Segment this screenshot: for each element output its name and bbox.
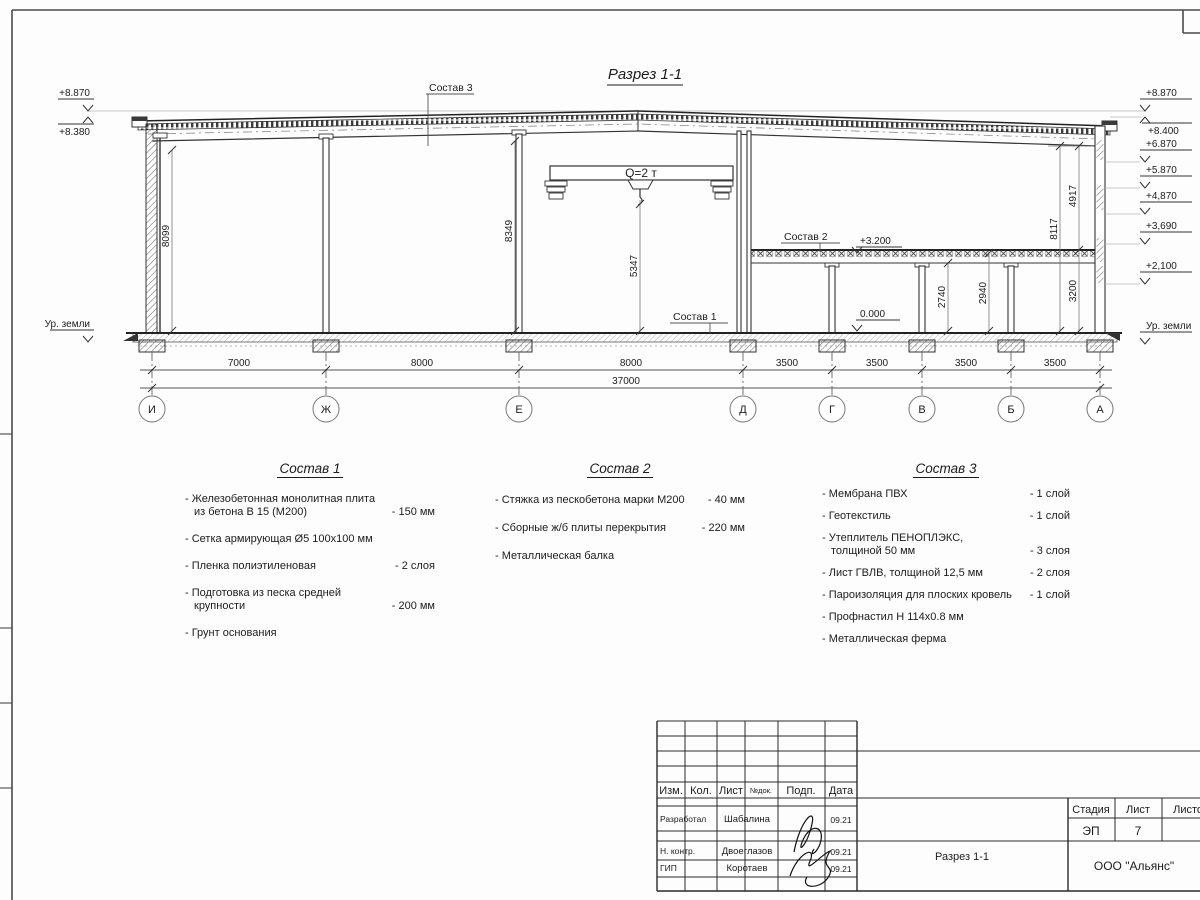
axis-bubble-Zh: Ж xyxy=(321,404,331,416)
elevation-marks-left: +8.870 +8.380 Ур. земли xyxy=(45,88,94,342)
crane-trolley xyxy=(628,180,653,189)
item-text: - Пароизоляция для плоских кровель xyxy=(822,589,1012,602)
item-text: - Стяжка из пескобетона марки М200 xyxy=(495,494,685,507)
drawing-title: Разрез 1-1 xyxy=(608,66,682,83)
elevation-marks-right: +8.870 +8.400 +6.870 +5.870 +4,870 +3,69… xyxy=(1105,88,1192,344)
composition-1-title: Состав 1 xyxy=(185,462,435,479)
composition-title-text: Состав 1 xyxy=(277,461,344,478)
elev-right-7: +2,100 xyxy=(1146,261,1177,272)
axis-bubble-A: А xyxy=(1096,404,1104,416)
elev-right-2: +8.400 xyxy=(1148,126,1179,137)
item-text: - Мембрана ПВХ xyxy=(822,488,907,501)
tb-row3-date: 09.21 xyxy=(830,864,852,874)
tb-col-list: Лист xyxy=(719,785,743,797)
callout-roof-label: Состав 3 xyxy=(429,82,473,94)
item-text: - Геотекстиль xyxy=(822,510,893,523)
list-item: - Металлическая балка xyxy=(495,550,745,563)
drawing-sheet: Разрез 1-1 xyxy=(0,0,1200,900)
tb-company: ООО "Альянс" xyxy=(1094,859,1174,873)
item-text: - Металлическая балка xyxy=(495,550,614,563)
list-item: - Пароизоляция для плоских кровель- 1 сл… xyxy=(822,589,1070,602)
tb-sheet-value: 7 xyxy=(1135,824,1142,838)
composition-3-title: Состав 3 xyxy=(822,462,1070,479)
crane-capacity-label: Q=2 т xyxy=(625,166,657,180)
list-item: - Пленка полиэтиленовая- 2 слоя xyxy=(185,560,435,573)
tb-col-izm: Изм. xyxy=(659,785,683,797)
dim-2740: 2740 xyxy=(937,285,948,308)
list-item: - Сетка армирующая Ø5 100х100 мм xyxy=(185,533,435,546)
elev-right-1: +8.870 xyxy=(1146,88,1177,99)
tb-sheet-header: Лист xyxy=(1126,804,1150,816)
composition-1-list: Состав 1 - Железобетонная монолитная пли… xyxy=(185,462,435,640)
item-text: - Железобетонная монолитная плита из бет… xyxy=(185,493,375,519)
item-text: - Пленка полиэтиленовая xyxy=(185,560,316,573)
axis-bubble-G: Г xyxy=(829,404,835,416)
callout-floor-label: Состав 1 xyxy=(673,311,717,323)
composition-3-list: Состав 3 - Мембрана ПВХ- 1 слой - Геотек… xyxy=(822,462,1070,646)
tb-row2-name: Двоеглазов xyxy=(722,846,773,857)
list-item: - Геотекстиль- 1 слой xyxy=(822,510,1070,523)
list-item: - Лист ГВЛВ, толщиной 12,5 мм- 2 слоя xyxy=(822,567,1070,580)
mezzanine-slab xyxy=(751,250,1095,263)
item-value: - 3 слоя xyxy=(1030,545,1070,558)
dim-8349: 8349 xyxy=(504,219,515,242)
dim-8117: 8117 xyxy=(1049,218,1060,240)
item-value: - 40 мм xyxy=(708,494,745,507)
tb-row3-role: ГИП xyxy=(660,863,677,873)
axis-bubble-D: Д xyxy=(739,404,747,416)
floor-slab xyxy=(123,333,1122,346)
list-item: - Утеплитель ПЕНОПЛЭКС, толщиной 50 мм- … xyxy=(822,532,1070,558)
elev-floor-zero: 0.000 xyxy=(860,309,885,320)
elev-left-ground: Ур. земли xyxy=(45,319,90,330)
dim-2940: 2940 xyxy=(978,281,989,304)
composition-title-text: Состав 2 xyxy=(587,461,654,478)
span-3500b: 3500 xyxy=(866,358,889,369)
tb-row1-role: Разработал xyxy=(660,814,706,824)
elev-left-top: +8.870 xyxy=(59,88,90,99)
tb-row1-name: Шабалина xyxy=(724,814,771,825)
title-block: Изм. Кол. Лист №док. Подп. Дата Разработ… xyxy=(657,721,1200,891)
elev-right-4: +5.870 xyxy=(1146,165,1177,176)
item-text: - Подготовка из песка средней крупности xyxy=(185,587,341,613)
dim-5347: 5347 xyxy=(629,254,640,277)
elev-right-6: +3,690 xyxy=(1146,221,1177,232)
item-text: - Сборные ж/б плиты перекрытия xyxy=(495,522,666,535)
tb-col-data: Дата xyxy=(829,785,854,797)
middle-partition-wall xyxy=(737,131,751,333)
span-total-37000: 37000 xyxy=(612,376,640,387)
composition-2-title: Состав 2 xyxy=(495,462,745,479)
dim-4917: 4917 xyxy=(1068,184,1079,207)
tb-row3-name: Коротаев xyxy=(726,863,767,874)
list-item: - Сборные ж/б плиты перекрытия- 220 мм xyxy=(495,522,745,535)
elev-left-eave: +8.380 xyxy=(59,127,90,138)
tb-col-podp: Подп. xyxy=(786,785,815,797)
tb-col-kol: Кол. xyxy=(690,785,712,797)
item-value: - 150 мм xyxy=(392,506,435,519)
span-3500d: 3500 xyxy=(1044,358,1067,369)
item-value: - 2 слоя xyxy=(395,560,435,573)
axis-bubble-V: В xyxy=(918,404,925,416)
columns xyxy=(319,130,526,333)
roof xyxy=(88,111,1145,146)
axis-bubble-B: Б xyxy=(1007,404,1014,416)
composition-2-list: Состав 2 - Стяжка из пескобетона марки М… xyxy=(495,462,745,563)
dim-3200: 3200 xyxy=(1068,279,1079,302)
span-8000a: 8000 xyxy=(411,358,434,369)
list-item: - Стяжка из пескобетона марки М200- 40 м… xyxy=(495,494,745,507)
dim-8099: 8099 xyxy=(161,224,172,247)
axis-grid: 7000 8000 8000 3500 3500 3500 3500 37000… xyxy=(139,352,1113,422)
right-wall xyxy=(1095,126,1105,333)
axis-bubble-I: И xyxy=(148,404,156,416)
item-text: - Лист ГВЛВ, толщиной 12,5 мм xyxy=(822,567,983,580)
composition-callouts xyxy=(426,94,840,333)
tb-sheets-header: Листов xyxy=(1173,804,1200,816)
tb-col-ndok: №док. xyxy=(750,786,772,795)
list-item: - Профнастил Н 114х0.8 мм xyxy=(822,611,1070,624)
item-value: - 2 слоя xyxy=(1030,567,1070,580)
item-value: - 200 мм xyxy=(392,600,435,613)
composition-title-text: Состав 3 xyxy=(913,461,980,478)
item-text: - Утеплитель ПЕНОПЛЭКС, толщиной 50 мм xyxy=(822,532,963,558)
span-3500a: 3500 xyxy=(776,358,799,369)
signature xyxy=(790,851,830,886)
item-text: - Грунт основания xyxy=(185,627,277,640)
item-text: - Металлическая ферма xyxy=(822,633,946,646)
list-item: - Мембрана ПВХ- 1 слой xyxy=(822,488,1070,501)
list-item: - Железобетонная монолитная плита из бет… xyxy=(185,493,435,519)
list-item: - Подготовка из песка средней крупности-… xyxy=(185,587,435,613)
tb-stage-value: ЭП xyxy=(1082,824,1099,838)
tb-row2-date: 09.21 xyxy=(830,847,852,857)
item-value: - 1 слой xyxy=(1030,510,1070,523)
section-drawing-svg: Разрез 1-1 xyxy=(0,0,1200,900)
signature xyxy=(794,816,821,854)
item-text: - Сетка армирующая Ø5 100х100 мм xyxy=(185,533,373,546)
elev-right-5: +4,870 xyxy=(1146,191,1177,202)
item-value: - 220 мм xyxy=(702,522,745,535)
item-text: - Профнастил Н 114х0.8 мм xyxy=(822,611,964,624)
callout-slab-label: Состав 2 xyxy=(784,231,828,243)
axis-bubble-E: Е xyxy=(515,404,522,416)
list-item: - Грунт основания xyxy=(185,627,435,640)
tb-row1-date: 09.21 xyxy=(830,815,852,825)
span-3500c: 3500 xyxy=(955,358,978,369)
list-item: - Металлическая ферма xyxy=(822,633,1070,646)
crane-beam: Q=2 т xyxy=(545,166,733,205)
tb-doc-title: Разрез 1-1 xyxy=(935,851,989,863)
item-value: - 1 слой xyxy=(1030,589,1070,602)
span-8000b: 8000 xyxy=(620,358,643,369)
elev-right-ground: Ур. земли xyxy=(1146,321,1191,332)
span-7000: 7000 xyxy=(228,358,251,369)
item-value: - 1 слой xyxy=(1030,488,1070,501)
tb-row2-role: Н. контр. xyxy=(660,846,695,856)
tb-stage-header: Стадия xyxy=(1072,804,1110,816)
elev-right-3: +6.870 xyxy=(1146,139,1177,150)
elev-slab-top: +3.200 xyxy=(860,236,891,247)
